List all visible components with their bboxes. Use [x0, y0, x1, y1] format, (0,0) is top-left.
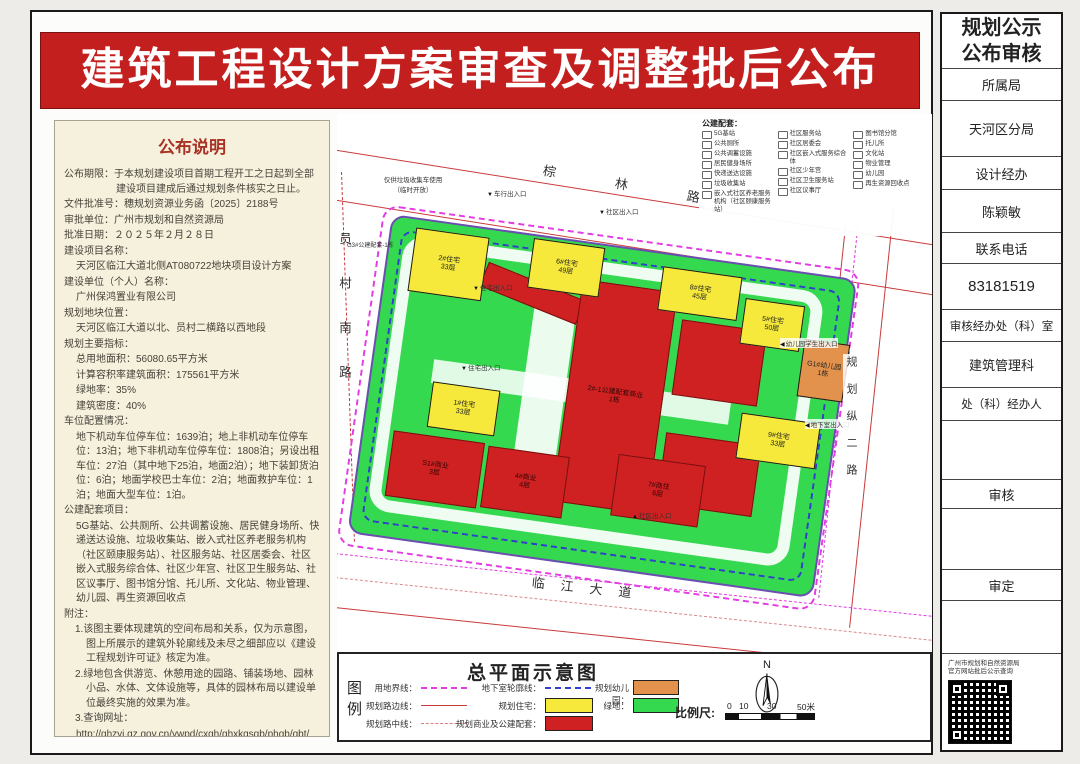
title-banner: 建筑工程设计方案审查及调整批后公布 [40, 32, 920, 109]
entrance-label: ▼住宅出入口 [461, 362, 500, 372]
entrance-arrow-icon: ▼ [473, 286, 479, 292]
entrance-arrow-icon: ◀ [780, 342, 785, 348]
building-label: 5#住宅 50层 [760, 315, 784, 335]
sidebar-field-designer-label: 设计经办 [942, 157, 1061, 190]
facility-legend-item: 社区服务站 [778, 130, 851, 139]
scale-label: 比例尺: [675, 704, 715, 721]
road-edge-swatch [421, 705, 467, 706]
entrance-label: ▼社区出入口 [599, 206, 638, 216]
qr-cell: 广州市规划和自然资源局 官方网站批后公示查询 [942, 654, 1061, 750]
notice-line: 建设项目名称： [64, 245, 320, 260]
notice-line: 3.查询网址： [64, 712, 320, 727]
notice-line: 审批单位：广州市规划和自然资源局 [64, 214, 320, 229]
facility-icon [853, 161, 863, 169]
qr-finder-icon [950, 728, 964, 742]
main-sheet: 建筑工程设计方案审查及调整批后公布 公布说明 公布期限：于本规划建设项目首期工程… [30, 10, 933, 755]
notice-line: 附注： [64, 608, 320, 623]
facility-icon [853, 171, 863, 179]
entrance-text: 住宅出入口 [468, 365, 501, 372]
sidebar-field-approve-value [942, 601, 1061, 654]
facility-icon [778, 178, 788, 186]
notice-line: 文件批准号：穗规划资源业务函〔2025〕2188号 [64, 198, 320, 213]
notice-heading: 公布说明 [64, 133, 320, 158]
notice-line: 天河区临江大道以北、员村二横路以西地段 [64, 322, 320, 337]
legend-item-label: 地下室轮廓线： [475, 682, 541, 694]
entrance-arrow-icon: ▼ [487, 192, 493, 198]
facility-legend-item: 图书馆分馆 [853, 130, 926, 139]
notice-line: 公建配套项目： [64, 504, 320, 519]
facility-icon [702, 141, 712, 149]
garbage-truck-note: 仅供垃圾收集车使用 （临时开放） [365, 174, 461, 194]
legend-item-label: 规划路边线： [359, 700, 417, 712]
notice-line: 批准日期：２０２５年２月２８日 [64, 229, 320, 244]
facility-legend-item: 托儿所 [853, 140, 926, 149]
qr-finder-icon [950, 682, 964, 696]
facility-icon [778, 131, 788, 139]
entrance-label: ▼住宅出入口 [473, 282, 512, 292]
facility-column: 5G基站 公共厕所 公共调蓄设施 居民健身场所 快递送达设施 垃圾收集站 嵌入式… [702, 130, 775, 215]
facility-legend-item: 5G基站 [702, 130, 775, 139]
facility-icon [702, 131, 712, 139]
entrance-label: ◀幼儿园学生出入口 [780, 338, 838, 348]
scale-tick: 50米 [797, 701, 815, 713]
commercial-swatch [545, 716, 593, 731]
legend-item-label: 规划住宅： [487, 700, 541, 712]
facility-legend-item: 社区居委会 [778, 140, 851, 149]
page-title: 建筑工程设计方案审查及调整批后公布 [41, 33, 919, 106]
facility-legend-item: 幼儿园 [853, 170, 926, 179]
north-arrow-icon [753, 670, 781, 716]
facility-icon [853, 131, 863, 139]
facility-icon [778, 168, 788, 176]
notice-line: 车位配置情况： [64, 415, 320, 430]
notice-line: 建设单位（个人）名称： [64, 276, 320, 291]
facility-icon [702, 171, 712, 179]
building-label: 9#住宅 33层 [766, 431, 790, 451]
scale-tick: 10 [739, 701, 748, 711]
public-facilities-title: 公建配套： [702, 118, 926, 129]
building-residential-6: 6#住宅 49层 [527, 238, 605, 298]
entrance-arrow-icon: ▼ [461, 366, 467, 372]
sidebar-field-handler-label: 处（科）经办人 [942, 388, 1061, 421]
facility-legend-item: 社区少年宫 [778, 167, 851, 176]
building-residential-1: 1#住宅 33层 [427, 381, 501, 436]
boundary-line-swatch [421, 687, 467, 689]
facility-icon [853, 141, 863, 149]
facility-icon [702, 151, 712, 159]
facility-icon [702, 191, 712, 199]
notice-line: 规划地块位置： [64, 307, 320, 322]
entrance-text: 住宅出入口 [480, 285, 513, 292]
facility-legend-item: 居民健身场所 [702, 160, 775, 169]
notice-line: 绿地率：35% [64, 384, 320, 399]
notice-line: 地下机动车位停车位：1639泊；地上非机动车位停车位：13泊；地下非机动车位停车… [64, 431, 320, 504]
legend-bar: 图 例 总平面示意图 用地界线： 规划路边线： 规划路中线： 地下室轮廓线： 规… [337, 652, 932, 742]
facility-icon [853, 181, 863, 189]
sidebar-field-office-label: 审核经办处（科）室 [942, 310, 1061, 342]
sidebar-field-bureau-value: 天河区分局 [942, 101, 1061, 157]
legend-item-label: 规划商业及公建配套： [451, 718, 541, 730]
site-greenery: 2#-1公建配套商业 1栋 S1#商业 3层 4#商业 4层 7#商住 6层 2… [347, 214, 857, 598]
entrance-text: 社区出入口 [639, 513, 672, 520]
scale-tick: 0 [727, 701, 732, 711]
site-plan-map: 2#-1公建配套商业 1栋 S1#商业 3层 4#商业 4层 7#商住 6层 2… [337, 114, 932, 652]
facility-icon [702, 181, 712, 189]
entrance-text: 车行出入口 [494, 191, 527, 198]
legend-item-label: 用地界线： [367, 682, 417, 694]
sidebar-field-designer-value: 陈颖敏 [942, 190, 1061, 233]
entrance-label: ▲社区出入口 [632, 510, 671, 520]
notice-line: 计算容积率建筑面积：175561平方米 [64, 369, 320, 384]
facility-legend-item: 文化站 [853, 150, 926, 159]
notice-line: 广州保鸿置业有限公司 [64, 291, 320, 306]
building-label: 2#住宅 33层 [437, 255, 461, 275]
review-sidebar: 规划公示 公布审核 所属局 天河区分局 设计经办 陈颖敏 联系电话 831815… [940, 12, 1063, 752]
facility-column: 社区服务站 社区居委会 社区嵌入式服务综合体 社区少年宫 社区卫生服务站 社区议… [778, 130, 851, 215]
entrance-arrow-icon: ▼ [599, 210, 605, 216]
facility-icon [702, 161, 712, 169]
building-label: G1#幼儿园 1栋 [805, 360, 841, 381]
sidebar-field-handler-value [942, 421, 1061, 480]
facility-legend-item: 快递送达设施 [702, 170, 775, 179]
building-commercial-4: 4#商业 4层 [480, 446, 570, 519]
facility-icon [853, 151, 863, 159]
notice-line: 建筑密度：40% [64, 400, 320, 415]
notice-line: 5G基站、公共厕所、公共调蓄设施、居民健身场所、快递送达设施、垃圾收集站、嵌入式… [64, 520, 320, 607]
building-label: 6#住宅 49层 [554, 258, 578, 278]
building-label: 8#住宅 45层 [688, 284, 712, 304]
building-commercial-s1: S1#商业 3层 [385, 430, 485, 508]
query-url: http://ghzyj.gz.gov.cn/ywpd/cxgh/ghxkgsg… [64, 728, 320, 738]
notice-line: 1.该图主要体现建筑的空间布局和关系，仅为示意图，图上所展示的建筑外轮廓线及未尽… [64, 623, 320, 667]
facility-legend-item: 嵌入式社区养老服务机构（社区颐康服务站） [702, 190, 775, 214]
notice-line: 公布期限：于本规划建设项目首期工程开工之日起到全部建设项目建成后通过规划条件核实… [64, 168, 320, 197]
facility-icon [778, 141, 788, 149]
notice-line: 2.绿地包含供游览、休憩用途的园路、铺装场地、园林小品、水体、文体设施等，具体的… [64, 668, 320, 712]
facility-legend-item: 公共厕所 [702, 140, 775, 149]
sidebar-field-phone-value: 83181519 [942, 264, 1061, 310]
entrance-label: ▼车行出入口 [487, 188, 526, 198]
facility-icon [778, 151, 788, 159]
facility-column: 图书馆分馆 托儿所 文化站 物业管理 幼儿园 再生资源回收点 [853, 130, 926, 215]
facility-legend-item: 物业管理 [853, 160, 926, 169]
qr-code [948, 680, 1012, 744]
entrance-text: 幼儿园学生出入口 [786, 341, 838, 348]
annex-building-label: G3#公建配套-1栋 [347, 240, 405, 249]
legend-item-label: 规划路中线： [359, 718, 417, 730]
sidebar-field-phone-label: 联系电话 [942, 233, 1061, 264]
sidebar-field-approve-label: 审定 [942, 570, 1061, 601]
notice-panel: 公布说明 公布期限：于本规划建设项目首期工程开工之日起到全部建设项目建成后通过规… [54, 120, 330, 737]
sidebar-title: 规划公示 公布审核 [942, 14, 1061, 69]
road-label-east: 规划纵二路 [843, 354, 859, 493]
entrance-text: 社区出入口 [606, 209, 639, 216]
building-label: 7#商住 6层 [646, 481, 670, 501]
sidebar-field-bureau-label: 所属局 [942, 69, 1061, 101]
sidebar-field-office-value: 建筑管理科 [942, 342, 1061, 388]
building-label: 1#住宅 33层 [452, 399, 476, 419]
facility-legend-item: 社区嵌入式服务综合体 [778, 150, 851, 166]
public-facilities-legend: 公建配套： 5G基站 公共厕所 公共调蓄设施 居民健身场所 快递送达设施 垃圾收… [699, 116, 929, 236]
facility-legend-item: 社区卫生服务站 [778, 177, 851, 186]
facility-icon [778, 188, 788, 196]
entrance-arrow-icon: ◀ [805, 423, 810, 429]
facility-legend-item: 再生资源回收点 [853, 180, 926, 189]
notice-line: 规划主要指标： [64, 338, 320, 353]
announcement-poster: 建筑工程设计方案审查及调整批后公布 公布说明 公布期限：于本规划建设项目首期工程… [0, 0, 1080, 764]
qr-finder-icon [996, 682, 1010, 696]
building-label: 4#商业 4层 [513, 472, 537, 492]
kindergarten-swatch [633, 680, 679, 695]
notice-line: 天河区临江大道北侧AT080722地块项目设计方案 [64, 260, 320, 275]
legend-block-label: 图 例 [347, 678, 362, 720]
building-label: 2#-1公建配套商业 1栋 [586, 385, 644, 409]
facility-legend-item: 垃圾收集站 [702, 180, 775, 189]
plan-title: 总平面示意图 [467, 658, 599, 685]
facility-legend-item: 公共调蓄设施 [702, 150, 775, 159]
road-line-south [337, 606, 932, 652]
road-label-west: 员村南路 [337, 232, 354, 410]
legend-item-label: 绿地： [597, 700, 629, 712]
entrance-arrow-icon: ▲ [632, 514, 638, 520]
greenery-swatch [633, 698, 679, 713]
sidebar-field-review-label: 审核 [942, 480, 1061, 509]
qr-caption: 广州市规划和自然资源局 官方网站批后公示查询 [948, 660, 1057, 677]
sidebar-field-review-value [942, 509, 1061, 570]
notice-line: 总用地面积：56080.65平方米 [64, 353, 320, 368]
facility-legend-item: 社区议事厅 [778, 187, 851, 196]
building-label: S1#商业 3层 [421, 459, 450, 479]
